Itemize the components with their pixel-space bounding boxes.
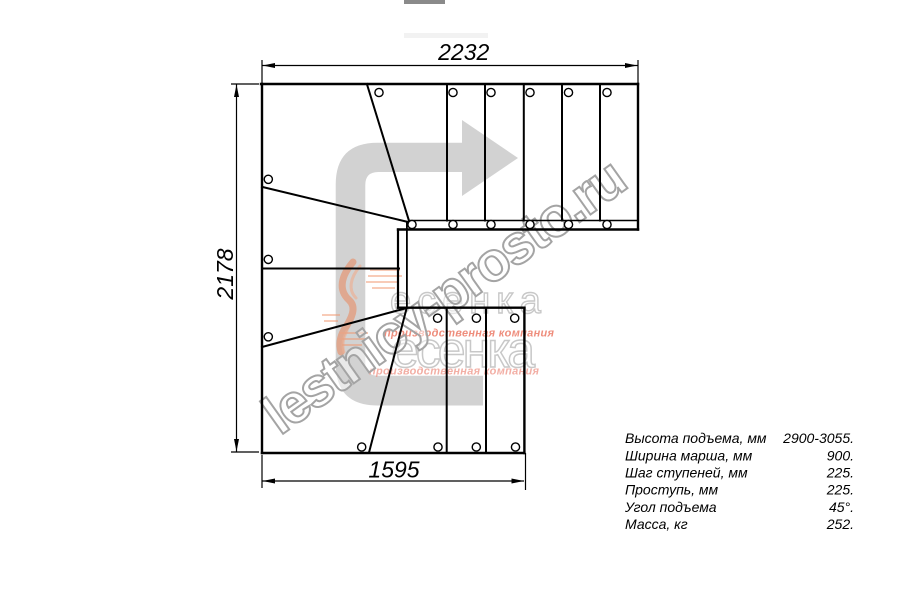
svg-text:45°.: 45°. <box>829 499 854 515</box>
svg-text:Ширина марша, мм: Ширина марша, мм <box>625 447 753 463</box>
svg-text:Масса, кг: Масса, кг <box>625 516 688 532</box>
svg-text:Проступь, мм: Проступь, мм <box>625 482 719 498</box>
svg-text:Угол подъема: Угол подъема <box>624 499 717 515</box>
svg-text:900.: 900. <box>827 447 854 463</box>
svg-text:Высота подъема, мм: Высота подъема, мм <box>625 430 767 446</box>
svg-text:252.: 252. <box>826 516 854 532</box>
svg-text:2178: 2178 <box>212 248 238 300</box>
svg-text:2900-3055.: 2900-3055. <box>782 430 854 446</box>
svg-text:225.: 225. <box>826 465 854 481</box>
svg-text:Шаг ступеней, мм: Шаг ступеней, мм <box>625 465 748 481</box>
svg-text:225.: 225. <box>826 482 854 498</box>
svg-text:1595: 1595 <box>368 457 419 483</box>
svg-text:2232: 2232 <box>437 39 489 65</box>
